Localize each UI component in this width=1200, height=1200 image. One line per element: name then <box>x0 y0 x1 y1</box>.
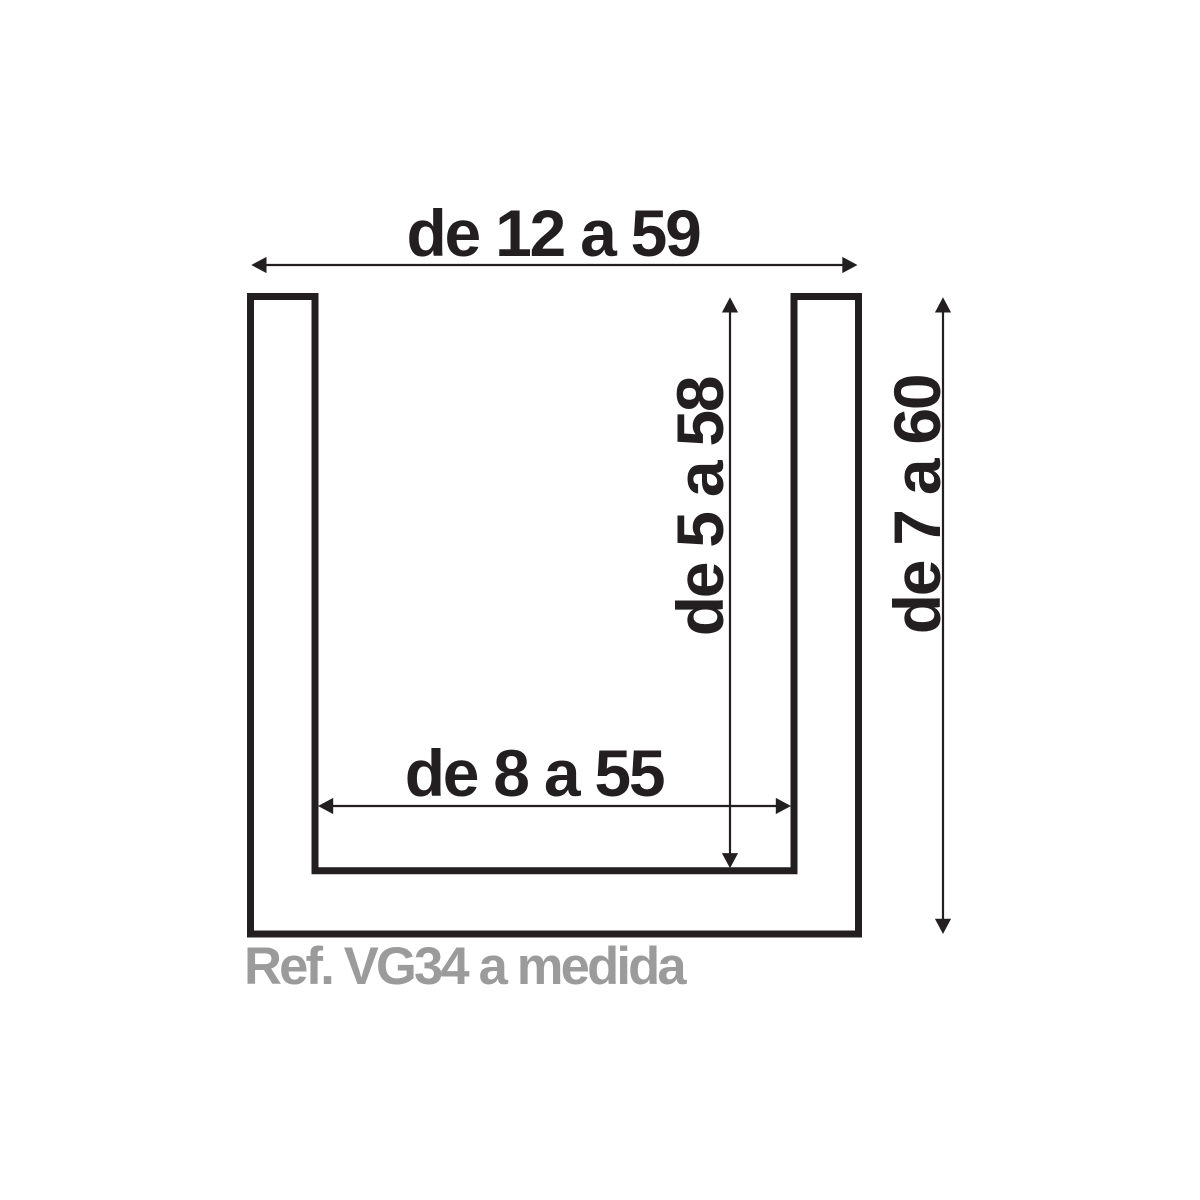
svg-text:Ref. VG34 a medida: Ref. VG34 a medida <box>244 937 687 996</box>
svg-text:de 12 a 59: de 12 a 59 <box>406 196 700 270</box>
svg-text:de 8 a 55: de 8 a 55 <box>405 736 664 810</box>
svg-text:de 5 a 58: de 5 a 58 <box>663 377 737 636</box>
svg-text:de 7 a 60: de 7 a 60 <box>880 376 954 635</box>
